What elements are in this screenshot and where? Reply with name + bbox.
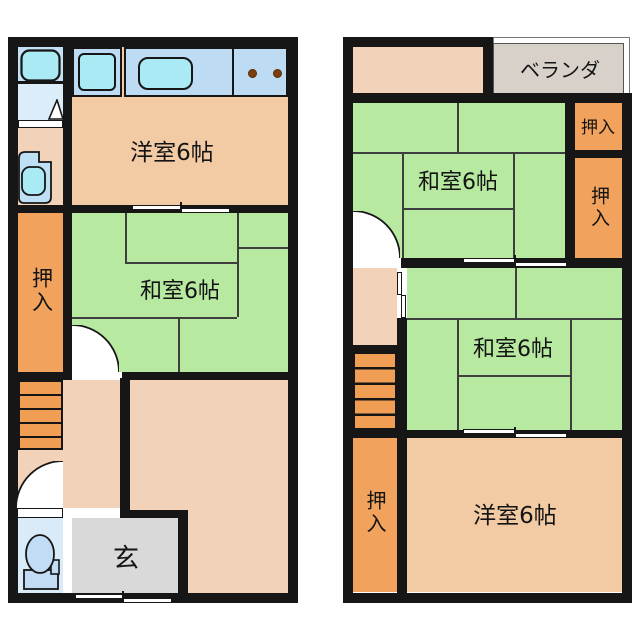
floor-plan-canvas: 洋室6帖 和室6帖 押入 玄 xyxy=(0,0,640,640)
wall xyxy=(343,37,353,603)
bathtub-icon xyxy=(20,49,61,82)
western-room-f2-label: 洋室6帖 xyxy=(435,499,595,527)
wall xyxy=(343,593,632,603)
wall xyxy=(8,37,298,47)
hallway-f2 xyxy=(353,268,397,345)
door-arc-toilet xyxy=(16,461,63,508)
wall xyxy=(622,99,632,603)
sliding-door xyxy=(463,258,515,263)
sliding-door xyxy=(463,429,515,434)
tatami-line xyxy=(353,152,565,154)
kitchen-sink-icon xyxy=(138,57,193,90)
tatami-line xyxy=(402,208,513,210)
tatami-line xyxy=(515,268,517,318)
dining-room-f1-lower xyxy=(188,512,288,593)
tatami-line xyxy=(125,262,237,264)
entrance-label: 玄 xyxy=(96,541,156,571)
closet-f2-left-label: 押入 xyxy=(362,472,389,554)
wall xyxy=(343,345,397,352)
tatami-line xyxy=(457,375,570,377)
toilet-icon xyxy=(18,518,63,593)
stairs-f1 xyxy=(18,380,63,450)
wall xyxy=(288,37,298,603)
sliding-door xyxy=(181,208,230,213)
vanity-sink-icon xyxy=(18,150,52,205)
sliding-door-tick xyxy=(514,255,516,262)
bath-door xyxy=(18,120,63,128)
kitchen-unit-inner xyxy=(78,53,116,91)
sliding-door xyxy=(515,433,567,438)
door-arc-japanese-room-f1 xyxy=(72,325,119,372)
wall xyxy=(565,150,622,158)
door-arc-japanese-room-f2 xyxy=(353,211,400,258)
sliding-door-vertical xyxy=(397,272,402,295)
stove-burner-icon xyxy=(248,69,257,78)
wall xyxy=(122,372,288,380)
wall xyxy=(8,37,18,603)
washroom-door-triangle-icon xyxy=(47,99,64,120)
sliding-door xyxy=(132,205,181,210)
closet-f1-label: 押入 xyxy=(28,245,55,337)
wall xyxy=(397,318,407,593)
wall xyxy=(343,37,493,47)
toilet-door-leaf xyxy=(17,508,63,518)
sliding-door-tick xyxy=(180,202,182,209)
japanese-room-f2-upper-label: 和室6帖 xyxy=(378,166,538,194)
western-room-f1-label: 洋室6帖 xyxy=(92,136,252,164)
tatami-line xyxy=(72,317,237,319)
closet-f2-right-label: 押入 xyxy=(586,170,613,246)
toilet-door-threshold xyxy=(63,508,120,518)
sliding-door xyxy=(515,262,567,267)
tatami-line xyxy=(178,317,180,372)
sliding-door-vertical xyxy=(401,295,406,318)
japanese-room-f2-lower-label: 和室6帖 xyxy=(433,333,593,361)
wall xyxy=(120,378,130,518)
sliding-door-tick xyxy=(122,591,124,598)
stairs-f2 xyxy=(353,352,397,430)
counter-divider xyxy=(232,47,234,97)
veranda-label: ベランダ xyxy=(480,56,640,80)
japanese-room-f1-label: 和室6帖 xyxy=(100,275,260,303)
wall xyxy=(178,510,188,603)
stove-burner-icon xyxy=(273,69,282,78)
dining-room-f1-upper xyxy=(130,378,288,512)
tatami-line xyxy=(407,318,622,320)
entrance-sliding-door xyxy=(123,598,172,603)
hall-room-f2 xyxy=(353,47,483,93)
wall xyxy=(8,372,72,380)
tatami-line xyxy=(125,213,127,262)
tatami-line xyxy=(237,247,288,249)
sliding-door-tick xyxy=(514,427,516,434)
entrance-sliding-door xyxy=(75,594,123,599)
tatami-line xyxy=(457,103,459,152)
closet-f2-top-label: 押入 xyxy=(572,113,624,137)
wall xyxy=(343,93,632,103)
